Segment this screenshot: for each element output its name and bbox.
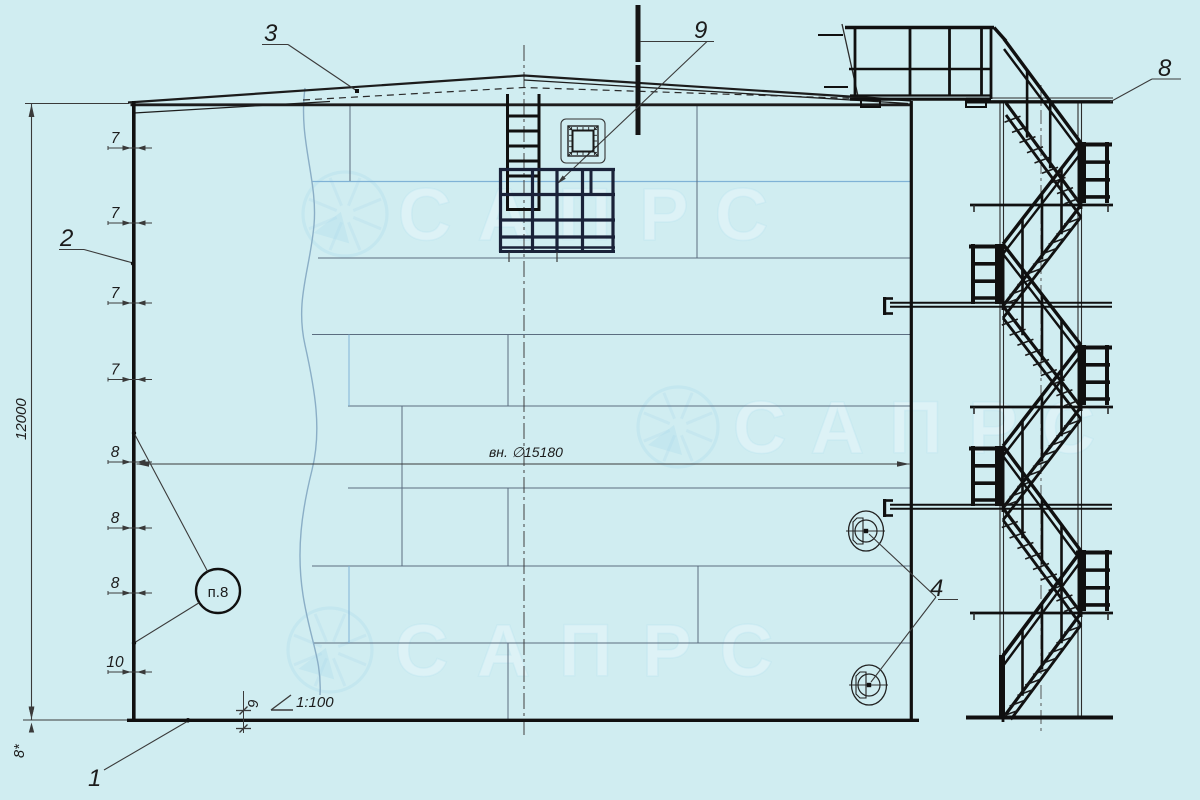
svg-text:9: 9 [245,699,262,708]
svg-text:2: 2 [59,225,73,252]
svg-text:САПРС: САПРС [398,173,796,256]
svg-text:12000: 12000 [13,398,30,440]
svg-text:САПРС: САПРС [733,386,1121,469]
svg-text:вн. ∅15180: вн. ∅15180 [489,444,563,460]
svg-text:7: 7 [111,362,121,379]
svg-text:8: 8 [111,510,120,527]
svg-text:10: 10 [106,654,124,671]
svg-text:7: 7 [111,130,121,147]
svg-text:8*: 8* [12,743,28,758]
svg-text:п.8: п.8 [208,584,229,601]
svg-text:7: 7 [111,205,121,222]
svg-text:7: 7 [111,285,121,302]
svg-text:3: 3 [264,20,278,47]
svg-text:8: 8 [1158,55,1172,82]
svg-text:9: 9 [694,17,707,44]
svg-text:8: 8 [111,575,120,592]
svg-text:1: 1 [88,765,101,792]
svg-text:САПРС: САПРС [395,609,803,692]
svg-text:4: 4 [930,575,943,602]
svg-text:1:100: 1:100 [296,694,334,711]
svg-text:8: 8 [111,444,120,461]
